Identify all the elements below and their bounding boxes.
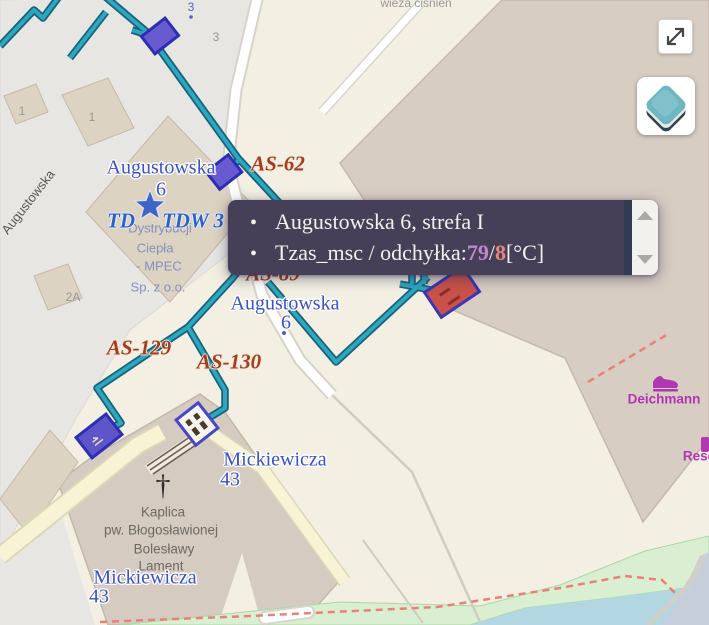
tooltip-deviation-value: 8: [495, 238, 506, 268]
tooltip-temp-label: Tzas_msc / odchyłka:: [275, 238, 467, 268]
layers-icon: [637, 77, 695, 135]
tooltip-body: • Augustowska 6, strefa I • Tzas_msc / o…: [228, 200, 624, 275]
map-canvas[interactable]: [0, 0, 709, 625]
tooltip-temp-value: 79: [467, 238, 489, 268]
tooltip-row-temperature: • Tzas_msc / odchyłka: 79 / 8 [°C]: [238, 238, 620, 269]
tooltip-row-address: • Augustowska 6, strefa I: [238, 207, 620, 238]
bullet-icon: •: [250, 239, 257, 269]
fullscreen-button[interactable]: [658, 19, 693, 54]
map-viewport[interactable]: AugustowskaDystrybucjiCiepła- MPECSp. z …: [0, 0, 709, 625]
tooltip-address-text: Augustowska 6, strefa I: [275, 207, 484, 237]
layers-button[interactable]: [637, 77, 695, 135]
bullet-icon: •: [250, 208, 257, 238]
entrance-dot-2: [282, 331, 286, 335]
clothes-shop-icon: [701, 437, 709, 452]
map-tooltip: • Augustowska 6, strefa I • Tzas_msc / o…: [228, 200, 658, 275]
tooltip-temp-unit: [°C]: [506, 238, 544, 268]
tooltip-scrollbar[interactable]: [624, 200, 658, 275]
entrance-dot-1: [189, 15, 193, 19]
scroll-down-icon[interactable]: [637, 255, 653, 264]
scroll-up-icon[interactable]: [637, 211, 653, 220]
expand-diagonal-icon: [659, 20, 692, 53]
